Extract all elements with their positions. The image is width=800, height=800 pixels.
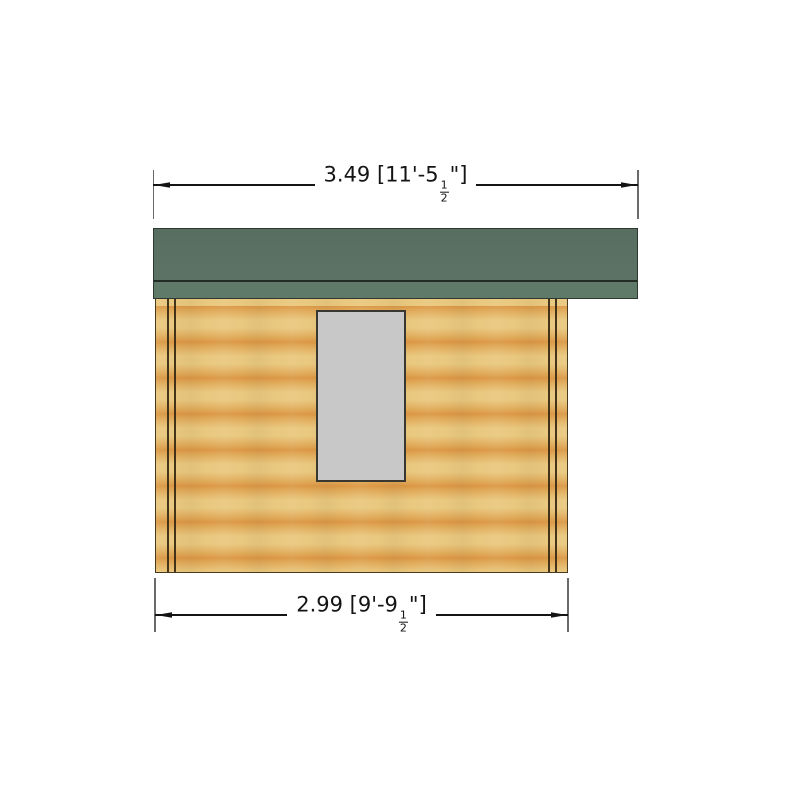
- top-dimension-label: 3.49 [11'-512"]: [153, 163, 638, 206]
- top-dimension-text: 3.49 [11'-5: [324, 163, 439, 187]
- corner-joint-line-left-inner: [174, 298, 176, 572]
- bottom-dimension-text: 2.99 [9'-9: [296, 593, 398, 617]
- window: [316, 310, 406, 482]
- bottom-dimension-suffix: "]: [409, 593, 427, 617]
- top-dimension-suffix: "]: [450, 163, 468, 187]
- elevation-drawing: 3.49 [11'-512"] 2.99 [9'-912"]: [0, 0, 800, 800]
- roof: [153, 228, 638, 299]
- corner-joint-line-left-outer: [167, 298, 169, 572]
- corner-joint-line-right-inner: [548, 298, 550, 572]
- roof-fascia: [154, 280, 637, 298]
- log-wall: [155, 297, 568, 573]
- corner-joint-line-right-outer: [555, 298, 557, 572]
- bottom-dimension-fraction: 12: [399, 610, 408, 636]
- bottom-dimension-label: 2.99 [9'-912"]: [155, 593, 568, 636]
- top-dimension-fraction: 12: [440, 180, 449, 206]
